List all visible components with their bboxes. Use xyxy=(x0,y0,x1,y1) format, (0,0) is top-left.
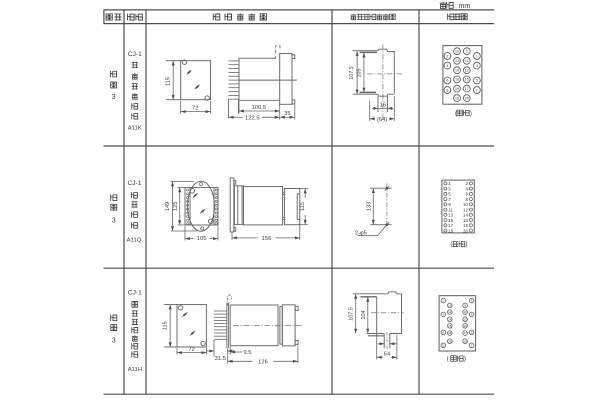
svg-text:(64): (64) xyxy=(377,117,387,123)
svg-text:12: 12 xyxy=(448,310,452,314)
svg-text::: : xyxy=(455,3,457,10)
svg-text:115: 115 xyxy=(300,202,306,211)
svg-text:2: 2 xyxy=(446,54,448,58)
svg-text:20: 20 xyxy=(463,228,468,233)
svg-text:104: 104 xyxy=(361,311,367,320)
svg-text:16: 16 xyxy=(448,324,452,328)
svg-text:10: 10 xyxy=(463,202,468,207)
svg-text:9: 9 xyxy=(466,50,468,54)
svg-text:CJ-1: CJ-1 xyxy=(128,51,142,58)
svg-text:): ) xyxy=(466,242,468,248)
svg-text:15: 15 xyxy=(465,78,469,82)
svg-text:107.5: 107.5 xyxy=(349,307,355,321)
svg-text:107.5: 107.5 xyxy=(349,66,355,80)
svg-text:6: 6 xyxy=(446,79,448,83)
svg-text:17: 17 xyxy=(463,331,467,335)
svg-text:31.5: 31.5 xyxy=(215,356,226,362)
svg-text:18: 18 xyxy=(455,87,459,91)
svg-text:): ) xyxy=(464,357,466,363)
svg-text:115: 115 xyxy=(163,321,169,330)
svg-text:mm: mm xyxy=(459,3,471,10)
svg-text:149: 149 xyxy=(165,202,171,211)
svg-text:10: 10 xyxy=(448,304,452,308)
svg-text:13: 13 xyxy=(455,59,459,63)
svg-text:11: 11 xyxy=(465,59,469,63)
svg-text:4: 4 xyxy=(446,64,448,68)
svg-text:16: 16 xyxy=(455,78,459,82)
svg-text:): ) xyxy=(470,111,472,117)
svg-text:CJ-1: CJ-1 xyxy=(128,290,142,297)
svg-text:115: 115 xyxy=(165,77,171,86)
svg-text:11: 11 xyxy=(464,310,467,314)
svg-text:13: 13 xyxy=(463,317,467,321)
svg-text:126: 126 xyxy=(258,359,268,365)
svg-text:7: 7 xyxy=(476,88,478,92)
svg-text:100.5: 100.5 xyxy=(252,105,267,111)
svg-text:3: 3 xyxy=(476,64,478,68)
svg-text:CJ-1: CJ-1 xyxy=(127,180,141,187)
svg-text:20: 20 xyxy=(465,96,469,100)
svg-text:16: 16 xyxy=(463,218,468,223)
svg-text:125: 125 xyxy=(173,202,179,211)
svg-text:8: 8 xyxy=(446,88,448,92)
svg-text:(: ( xyxy=(447,357,449,363)
svg-text:A11K: A11K xyxy=(128,125,142,131)
svg-text:35: 35 xyxy=(284,111,290,117)
svg-text:20: 20 xyxy=(448,339,452,343)
svg-text:(: ( xyxy=(450,242,452,248)
svg-text:72: 72 xyxy=(188,347,194,353)
svg-text:19: 19 xyxy=(455,96,459,100)
svg-text:14: 14 xyxy=(455,69,459,73)
svg-text:15: 15 xyxy=(448,218,453,223)
svg-text:64: 64 xyxy=(384,352,391,358)
svg-text:17: 17 xyxy=(465,87,469,91)
svg-text:10: 10 xyxy=(455,50,459,54)
svg-text:1: 1 xyxy=(476,54,478,58)
svg-text:122.5: 122.5 xyxy=(245,115,260,121)
svg-text:105: 105 xyxy=(197,236,207,242)
svg-text:14: 14 xyxy=(448,317,452,321)
svg-text:A11Q: A11Q xyxy=(127,238,142,244)
svg-text:156: 156 xyxy=(262,236,272,242)
svg-text:3: 3 xyxy=(112,336,116,345)
svg-text:3: 3 xyxy=(112,215,116,224)
svg-text:9.5: 9.5 xyxy=(243,350,251,356)
svg-text:19: 19 xyxy=(448,228,453,233)
svg-text:2-φ5: 2-φ5 xyxy=(355,231,367,237)
svg-text:72: 72 xyxy=(192,106,198,112)
svg-text:19: 19 xyxy=(463,339,467,343)
svg-text:15: 15 xyxy=(463,324,467,328)
svg-text:5: 5 xyxy=(476,79,478,83)
svg-text:133: 133 xyxy=(366,202,372,211)
svg-text:105: 105 xyxy=(357,69,363,78)
svg-text:3: 3 xyxy=(112,92,116,101)
svg-text:12: 12 xyxy=(465,69,469,73)
svg-text:18: 18 xyxy=(448,331,452,335)
svg-text:A11H: A11H xyxy=(128,367,142,373)
svg-text:16: 16 xyxy=(380,102,386,108)
